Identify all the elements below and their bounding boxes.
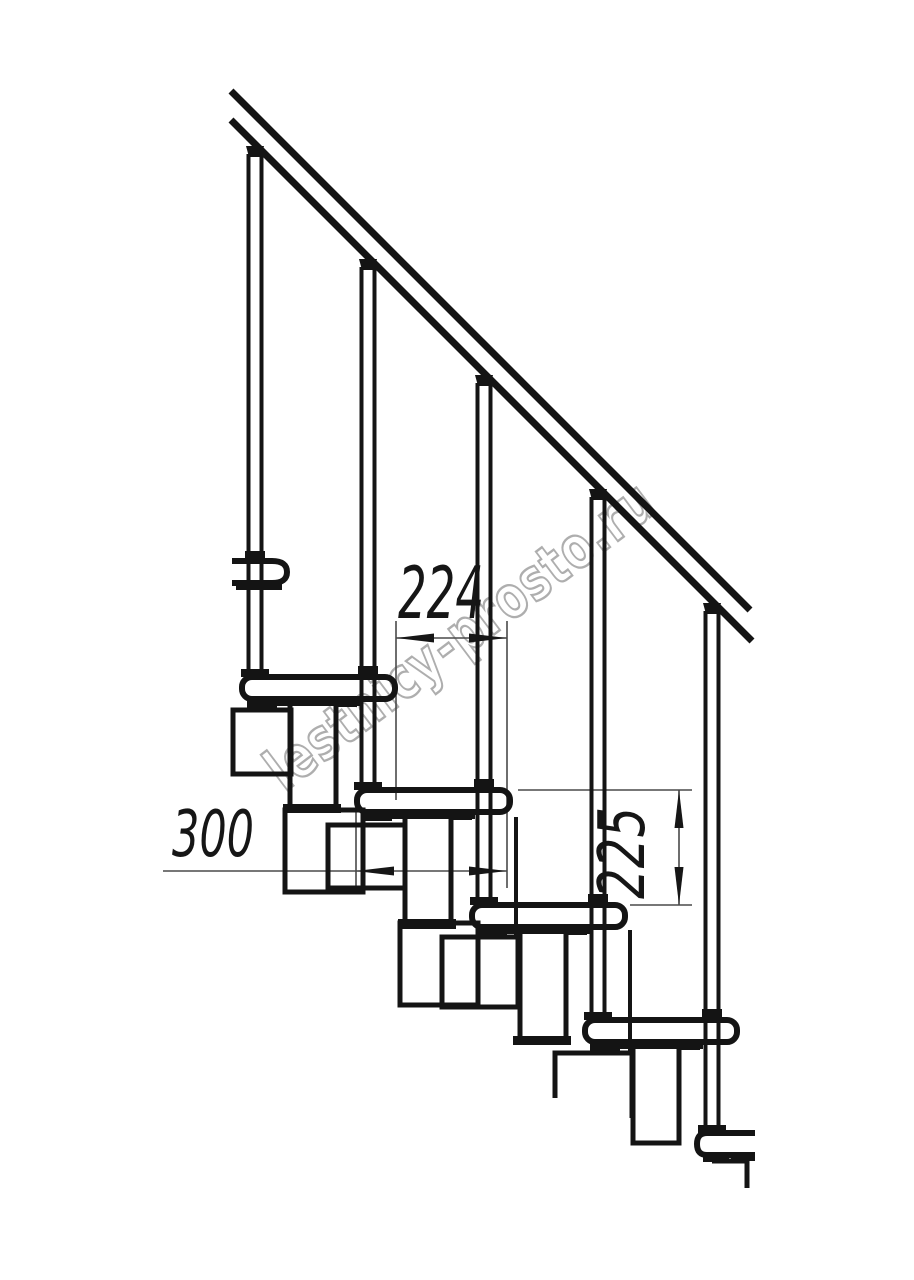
staircase-drawing-page: lestnicy-prosto.ru 224 300 225 bbox=[0, 0, 914, 1280]
module-box-4-partial bbox=[555, 1053, 632, 1118]
baluster-5-base bbox=[698, 1125, 726, 1133]
clamp-t5-c bbox=[678, 1041, 700, 1050]
module-column-4 bbox=[633, 1043, 679, 1143]
clamp-t2-c bbox=[335, 698, 357, 707]
baluster-1 bbox=[241, 146, 269, 677]
arrow-225-top bbox=[675, 790, 684, 828]
module-box-2-front bbox=[328, 825, 405, 888]
clamp-t4-a bbox=[477, 926, 507, 936]
module-box-2-rear bbox=[285, 810, 363, 892]
arrow-300-right bbox=[469, 867, 507, 876]
module-column-2 bbox=[405, 813, 451, 925]
clamp-t1 bbox=[236, 582, 282, 590]
clamp-t5-a bbox=[590, 1041, 620, 1051]
baluster-1-base bbox=[241, 669, 269, 677]
baluster-1-collar bbox=[245, 551, 265, 562]
clamp-t2-a bbox=[247, 698, 277, 708]
column-foot-3 bbox=[513, 1036, 571, 1045]
baluster-4-base bbox=[584, 1012, 612, 1020]
column-foot-1 bbox=[283, 804, 341, 813]
module-column-3 bbox=[520, 928, 566, 1042]
clamp-t3-a bbox=[362, 811, 392, 821]
baluster-5 bbox=[698, 603, 726, 1133]
clamp-t3-c bbox=[450, 811, 472, 820]
baluster-2-base bbox=[354, 782, 382, 790]
tread-5 bbox=[585, 1020, 737, 1042]
baluster-5-collar bbox=[702, 1009, 722, 1020]
staircase-side-elevation: lestnicy-prosto.ru 224 300 225 bbox=[0, 0, 914, 1280]
tread-6-partial bbox=[697, 1133, 755, 1155]
clamp-t4-c bbox=[565, 926, 587, 935]
dim-label-224: 224 bbox=[398, 551, 484, 635]
bottom-module-edge bbox=[712, 1161, 747, 1188]
dim-label-225: 225 bbox=[586, 807, 660, 899]
clamp-t6-a bbox=[703, 1153, 729, 1162]
dim-label-300: 300 bbox=[172, 798, 254, 872]
baluster-4-collar bbox=[588, 894, 608, 905]
column-foot-2 bbox=[398, 919, 456, 929]
baluster-3-collar bbox=[474, 779, 494, 790]
tread-4 bbox=[472, 905, 625, 927]
baluster-3-base bbox=[470, 897, 498, 905]
clamp-t6-b bbox=[731, 1153, 755, 1161]
baluster-2-collar bbox=[358, 666, 378, 677]
arrow-225-bottom bbox=[675, 867, 684, 905]
tread-3 bbox=[357, 790, 510, 812]
